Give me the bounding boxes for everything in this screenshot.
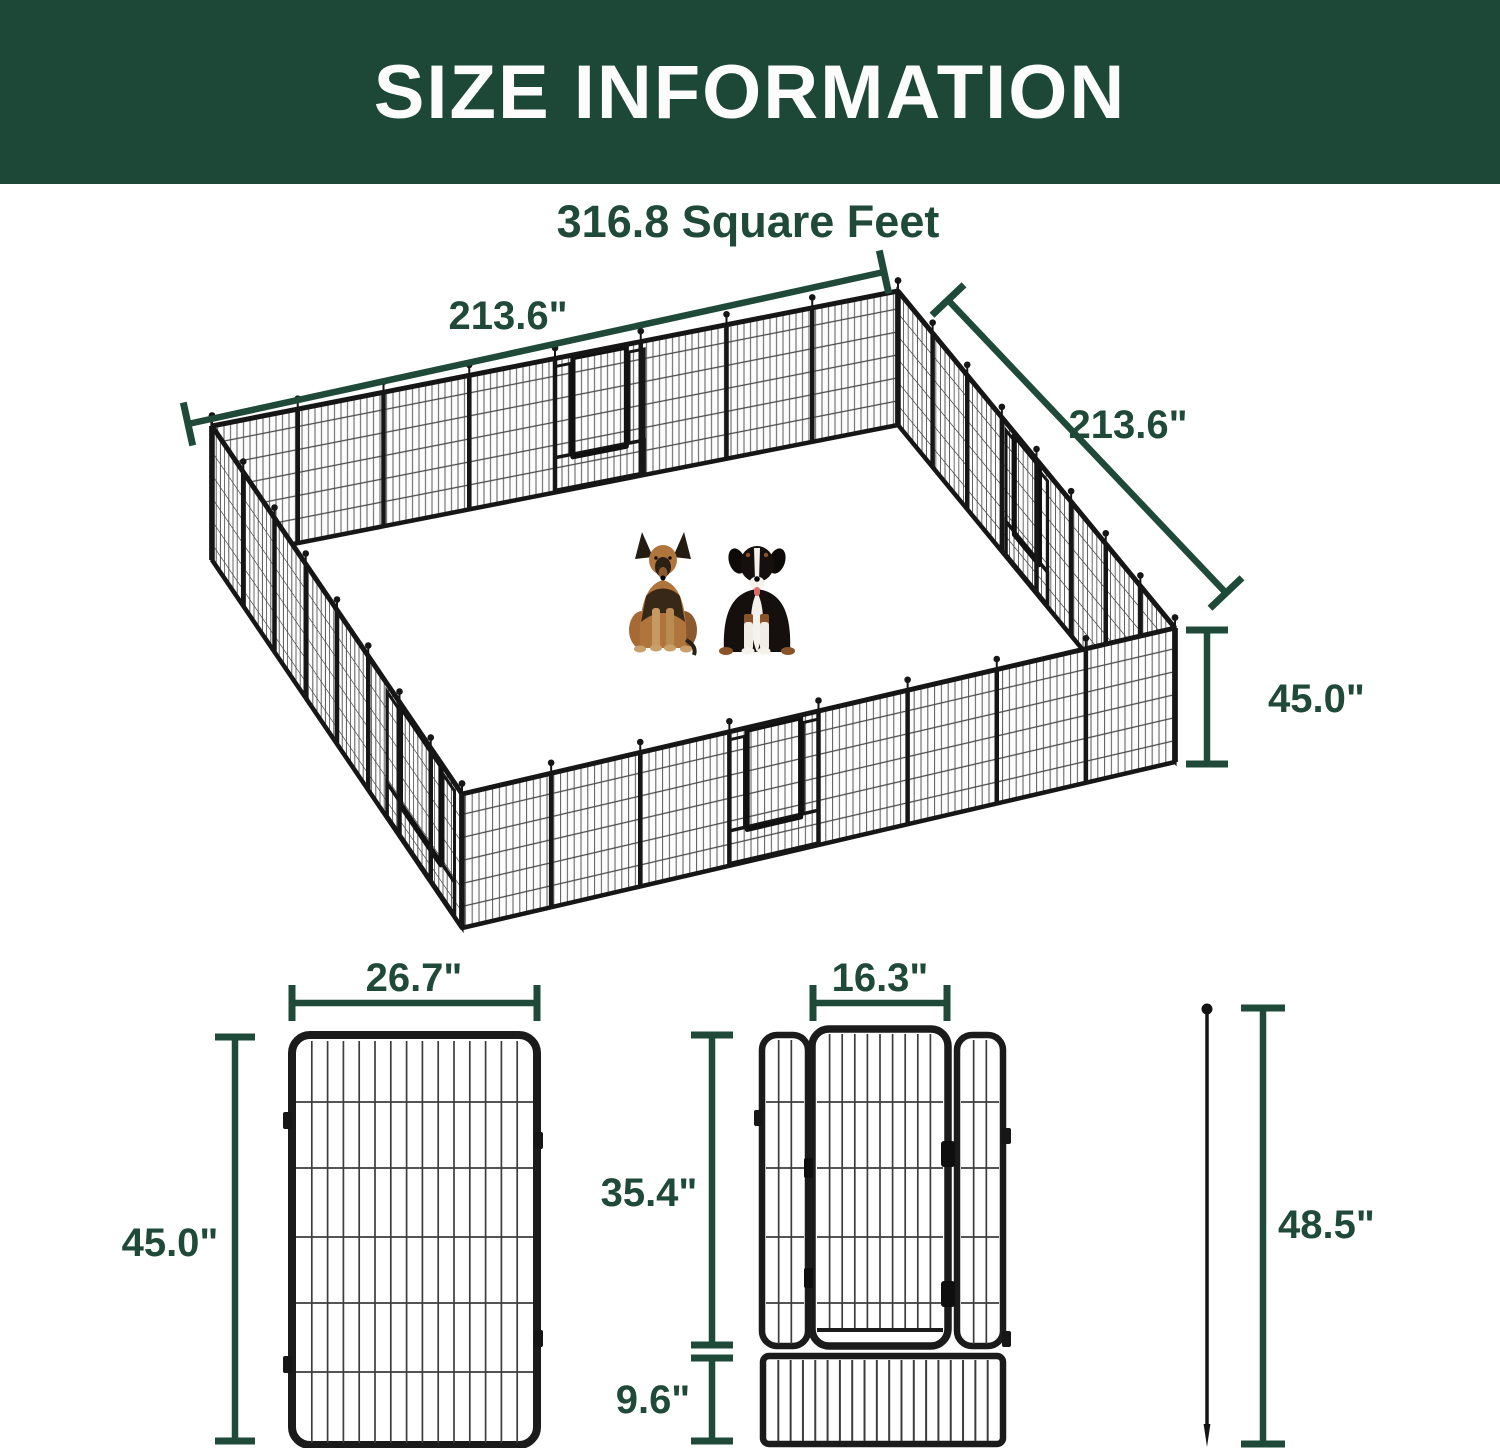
area-label: 316.8 Square Feet [557, 196, 940, 247]
stake-length-label: 48.5" [1278, 1203, 1375, 1247]
back-width-label: 213.6" [448, 294, 567, 338]
pen-height-label: 45.0" [1268, 677, 1365, 721]
door-latch [804, 1158, 813, 1178]
side-depth-label: 213.6" [1068, 403, 1187, 447]
pen-wall-front [459, 614, 1179, 928]
door-width-label: 16.3" [832, 956, 929, 1000]
bottom-height-label: 9.6" [616, 1378, 691, 1422]
dim-door-height: 35.4" [601, 1035, 733, 1345]
dim-door-width: 16.3" [813, 956, 947, 1021]
dog-bernese-mountain-dog [719, 546, 795, 655]
dim-pen-height: 45.0" [1186, 630, 1365, 764]
door-hinge [941, 1281, 955, 1307]
dim-bottom-height: 9.6" [616, 1358, 733, 1441]
door-latch [804, 1268, 813, 1288]
door-panel-detail-figure [754, 1029, 1011, 1444]
pen-illustration [209, 277, 1179, 928]
stake-figure [1202, 1004, 1213, 1448]
panel-detail-figure [283, 1035, 543, 1445]
dim-panel-height: 45.0" [122, 1037, 255, 1441]
panel-width-label: 26.7" [366, 956, 463, 1000]
dim-stake-length: 48.5" [1241, 1008, 1375, 1444]
door-hinge [941, 1141, 955, 1167]
dim-panel-width: 26.7" [292, 956, 537, 1021]
diagram-canvas: 316.8 Square Feet [0, 0, 1500, 1448]
dog-german-shepherd [629, 532, 697, 655]
size-information-infographic: SIZE INFORMATION 316.8 Square Feet [0, 0, 1500, 1448]
door-height-label: 35.4" [601, 1171, 698, 1215]
panel-height-label: 45.0" [122, 1221, 219, 1265]
